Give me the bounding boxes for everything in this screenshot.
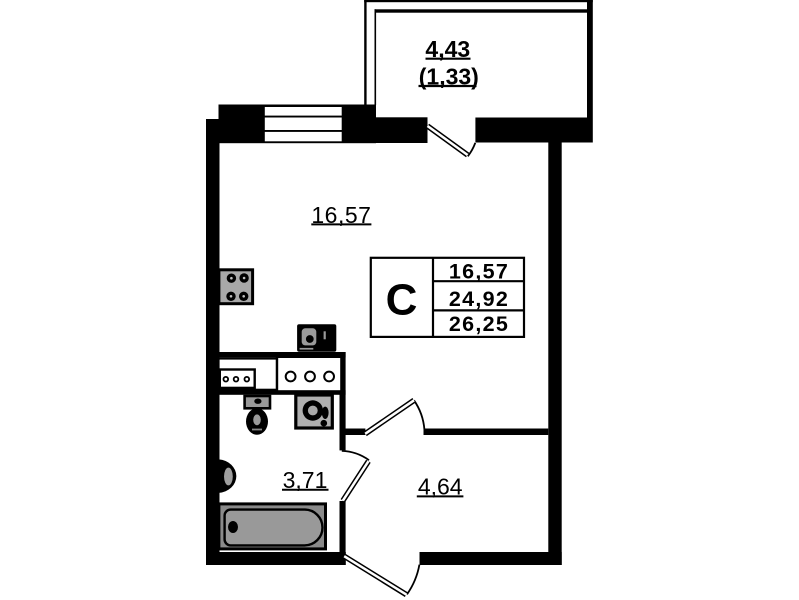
svg-text:16,57: 16,57 xyxy=(449,260,509,284)
svg-text:С: С xyxy=(386,276,418,325)
svg-text:26,25: 26,25 xyxy=(449,312,509,336)
svg-text:24,92: 24,92 xyxy=(449,287,509,311)
